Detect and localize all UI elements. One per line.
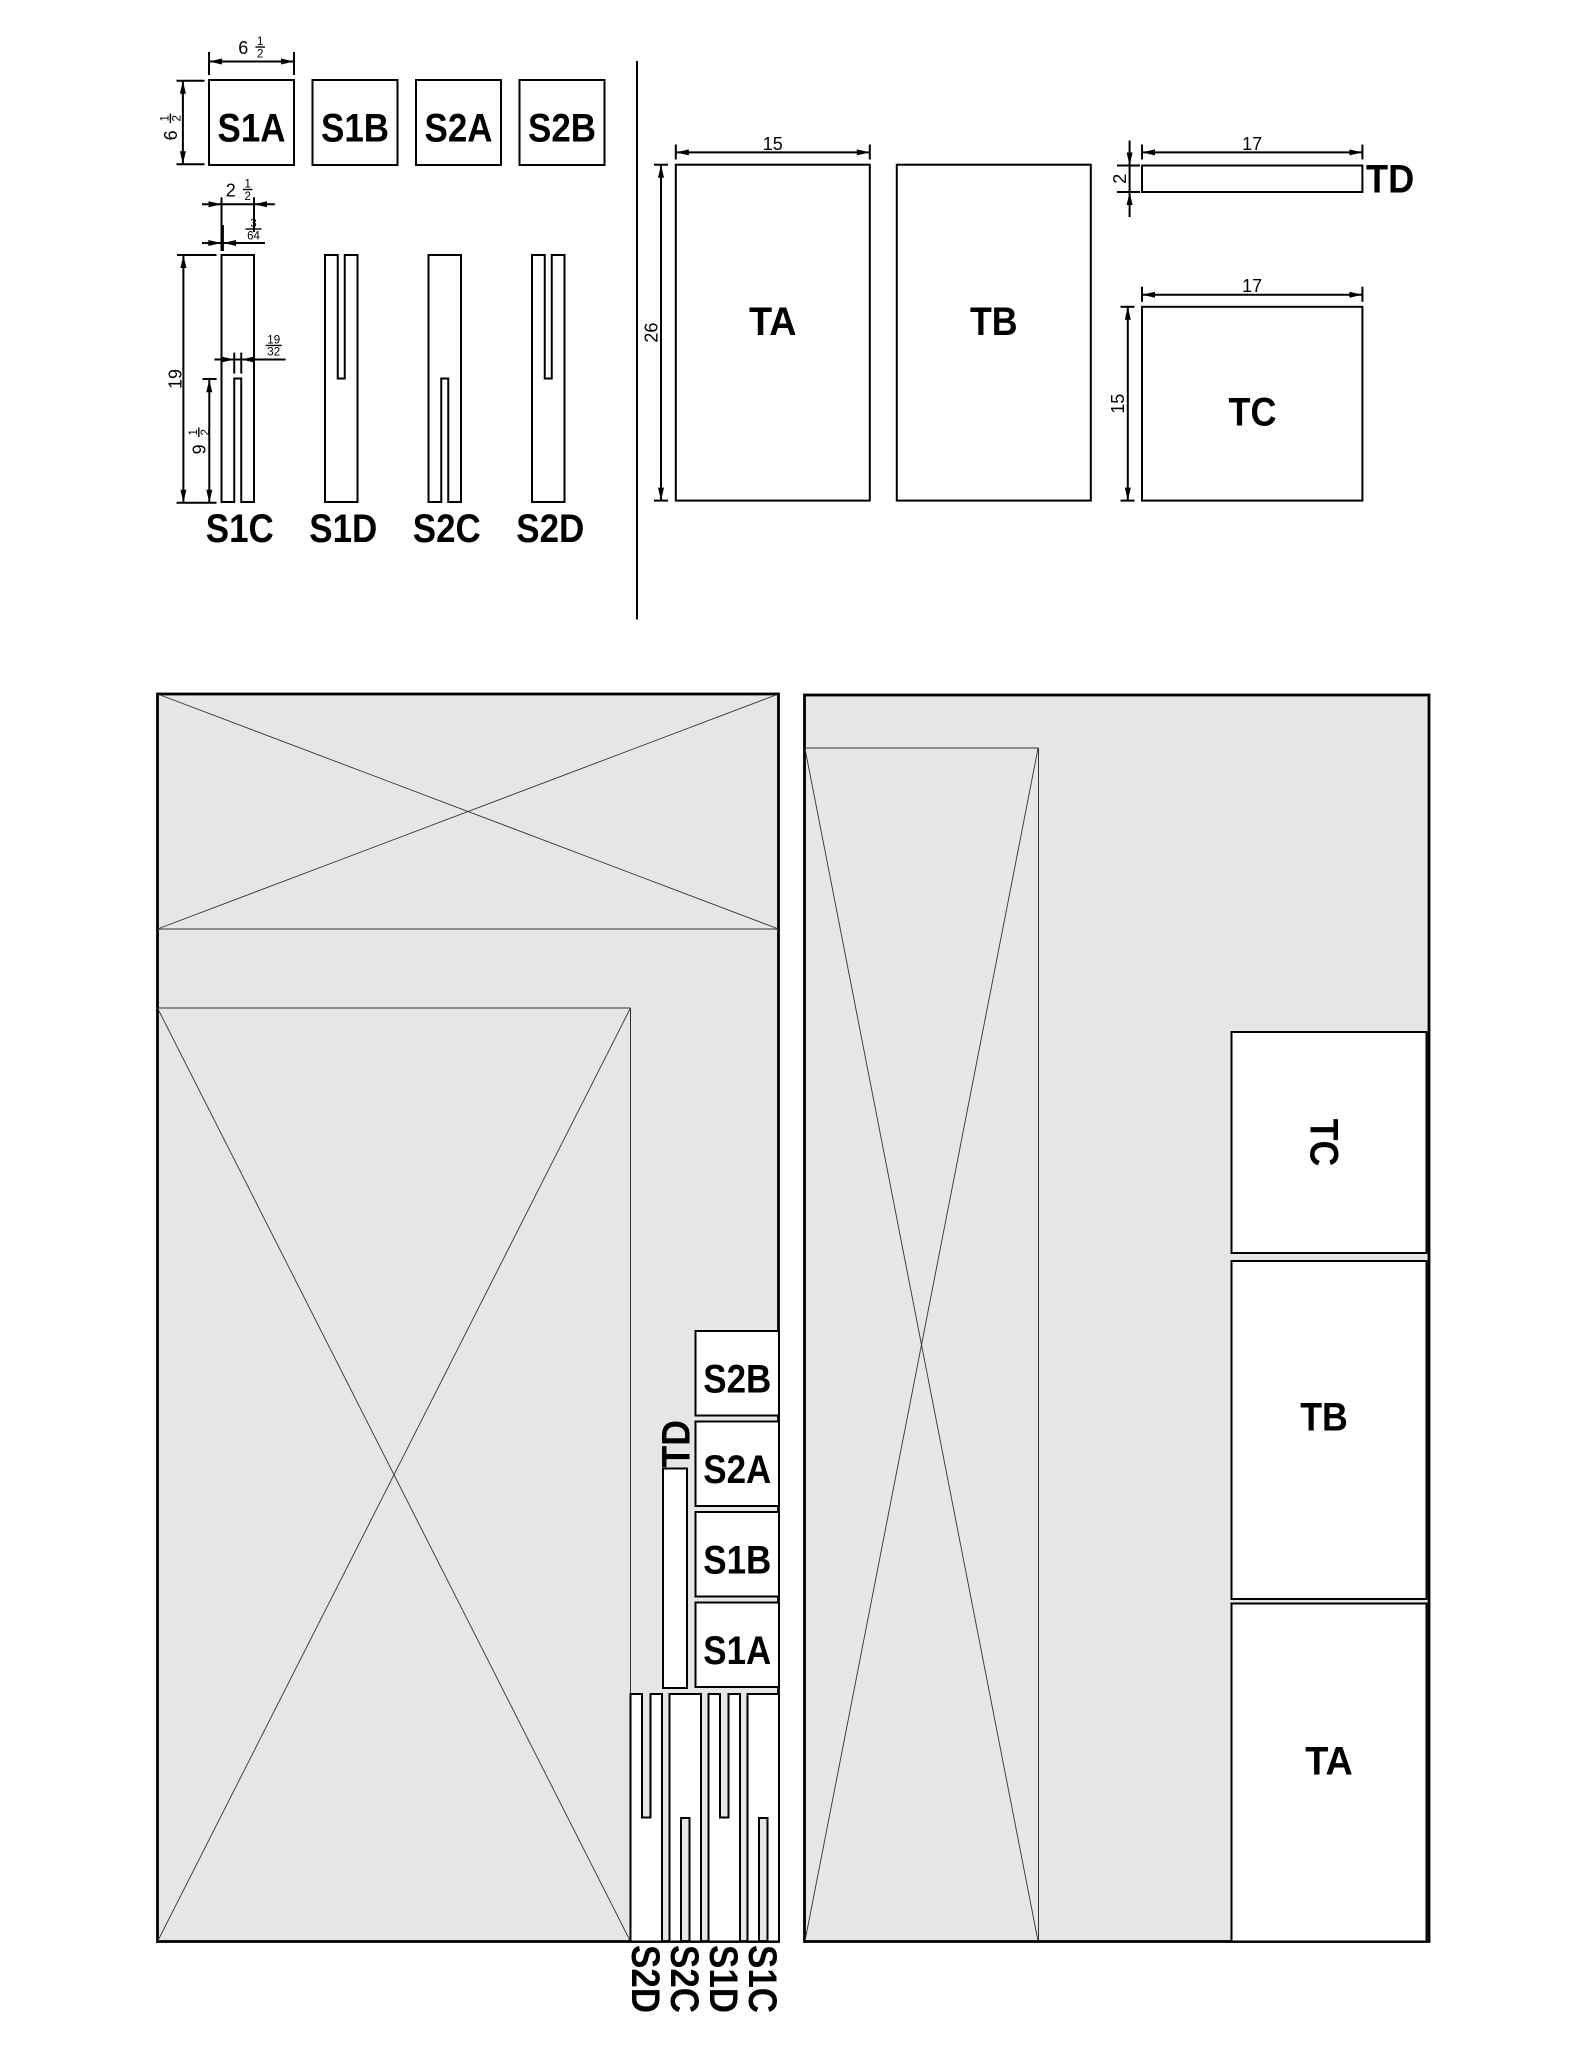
svg-text:S1D: S1D (309, 507, 377, 551)
svg-text:S1B: S1B (703, 1538, 771, 1582)
svg-text:26: 26 (641, 323, 661, 343)
svg-text:S2D: S2D (516, 507, 584, 551)
svg-text:15: 15 (1108, 394, 1128, 414)
svg-text:6: 6 (238, 38, 248, 58)
svg-text:17: 17 (1242, 134, 1262, 154)
svg-text:32: 32 (267, 347, 280, 359)
svg-text:3: 3 (250, 218, 256, 230)
svg-text:1: 1 (244, 179, 250, 191)
svg-text:2: 2 (226, 180, 236, 200)
svg-text:S2B: S2B (703, 1357, 771, 1401)
svg-text:S1C: S1C (206, 507, 274, 551)
svg-text:S2C: S2C (413, 507, 481, 551)
svg-text:2: 2 (244, 191, 250, 203)
svg-text:S1A: S1A (218, 106, 286, 150)
svg-text:1: 1 (159, 115, 171, 121)
svg-text:17: 17 (1242, 276, 1262, 296)
svg-text:S2D: S2D (623, 1945, 667, 2013)
svg-text:1: 1 (257, 36, 263, 48)
svg-text:TD: TD (1366, 157, 1414, 201)
svg-text:TC: TC (1302, 1119, 1346, 1167)
svg-text:TA: TA (1305, 1740, 1353, 1784)
svg-text:6: 6 (161, 130, 181, 140)
svg-text:TB: TB (1300, 1396, 1348, 1440)
svg-text:2: 2 (172, 115, 184, 121)
svg-text:S2C: S2C (662, 1945, 706, 2013)
svg-text:S2A: S2A (703, 1448, 771, 1492)
svg-text:TB: TB (970, 300, 1018, 344)
svg-text:2: 2 (1110, 174, 1130, 184)
svg-text:S1A: S1A (703, 1629, 771, 1673)
svg-text:S1C: S1C (740, 1945, 784, 2013)
svg-text:S2B: S2B (528, 106, 596, 150)
svg-text:S1B: S1B (321, 106, 389, 150)
svg-text:19: 19 (267, 334, 280, 346)
svg-text:19: 19 (166, 369, 186, 389)
svg-text:2: 2 (257, 48, 263, 60)
svg-text:S1D: S1D (701, 1945, 745, 2013)
svg-text:64: 64 (247, 230, 260, 242)
svg-text:TC: TC (1229, 391, 1277, 435)
svg-text:9: 9 (190, 444, 210, 454)
svg-text:TA: TA (749, 300, 797, 344)
svg-text:TD: TD (655, 1420, 699, 1468)
svg-text:15: 15 (763, 134, 783, 154)
svg-text:2: 2 (200, 429, 212, 435)
svg-text:1: 1 (188, 429, 200, 435)
svg-text:S2A: S2A (425, 106, 493, 150)
